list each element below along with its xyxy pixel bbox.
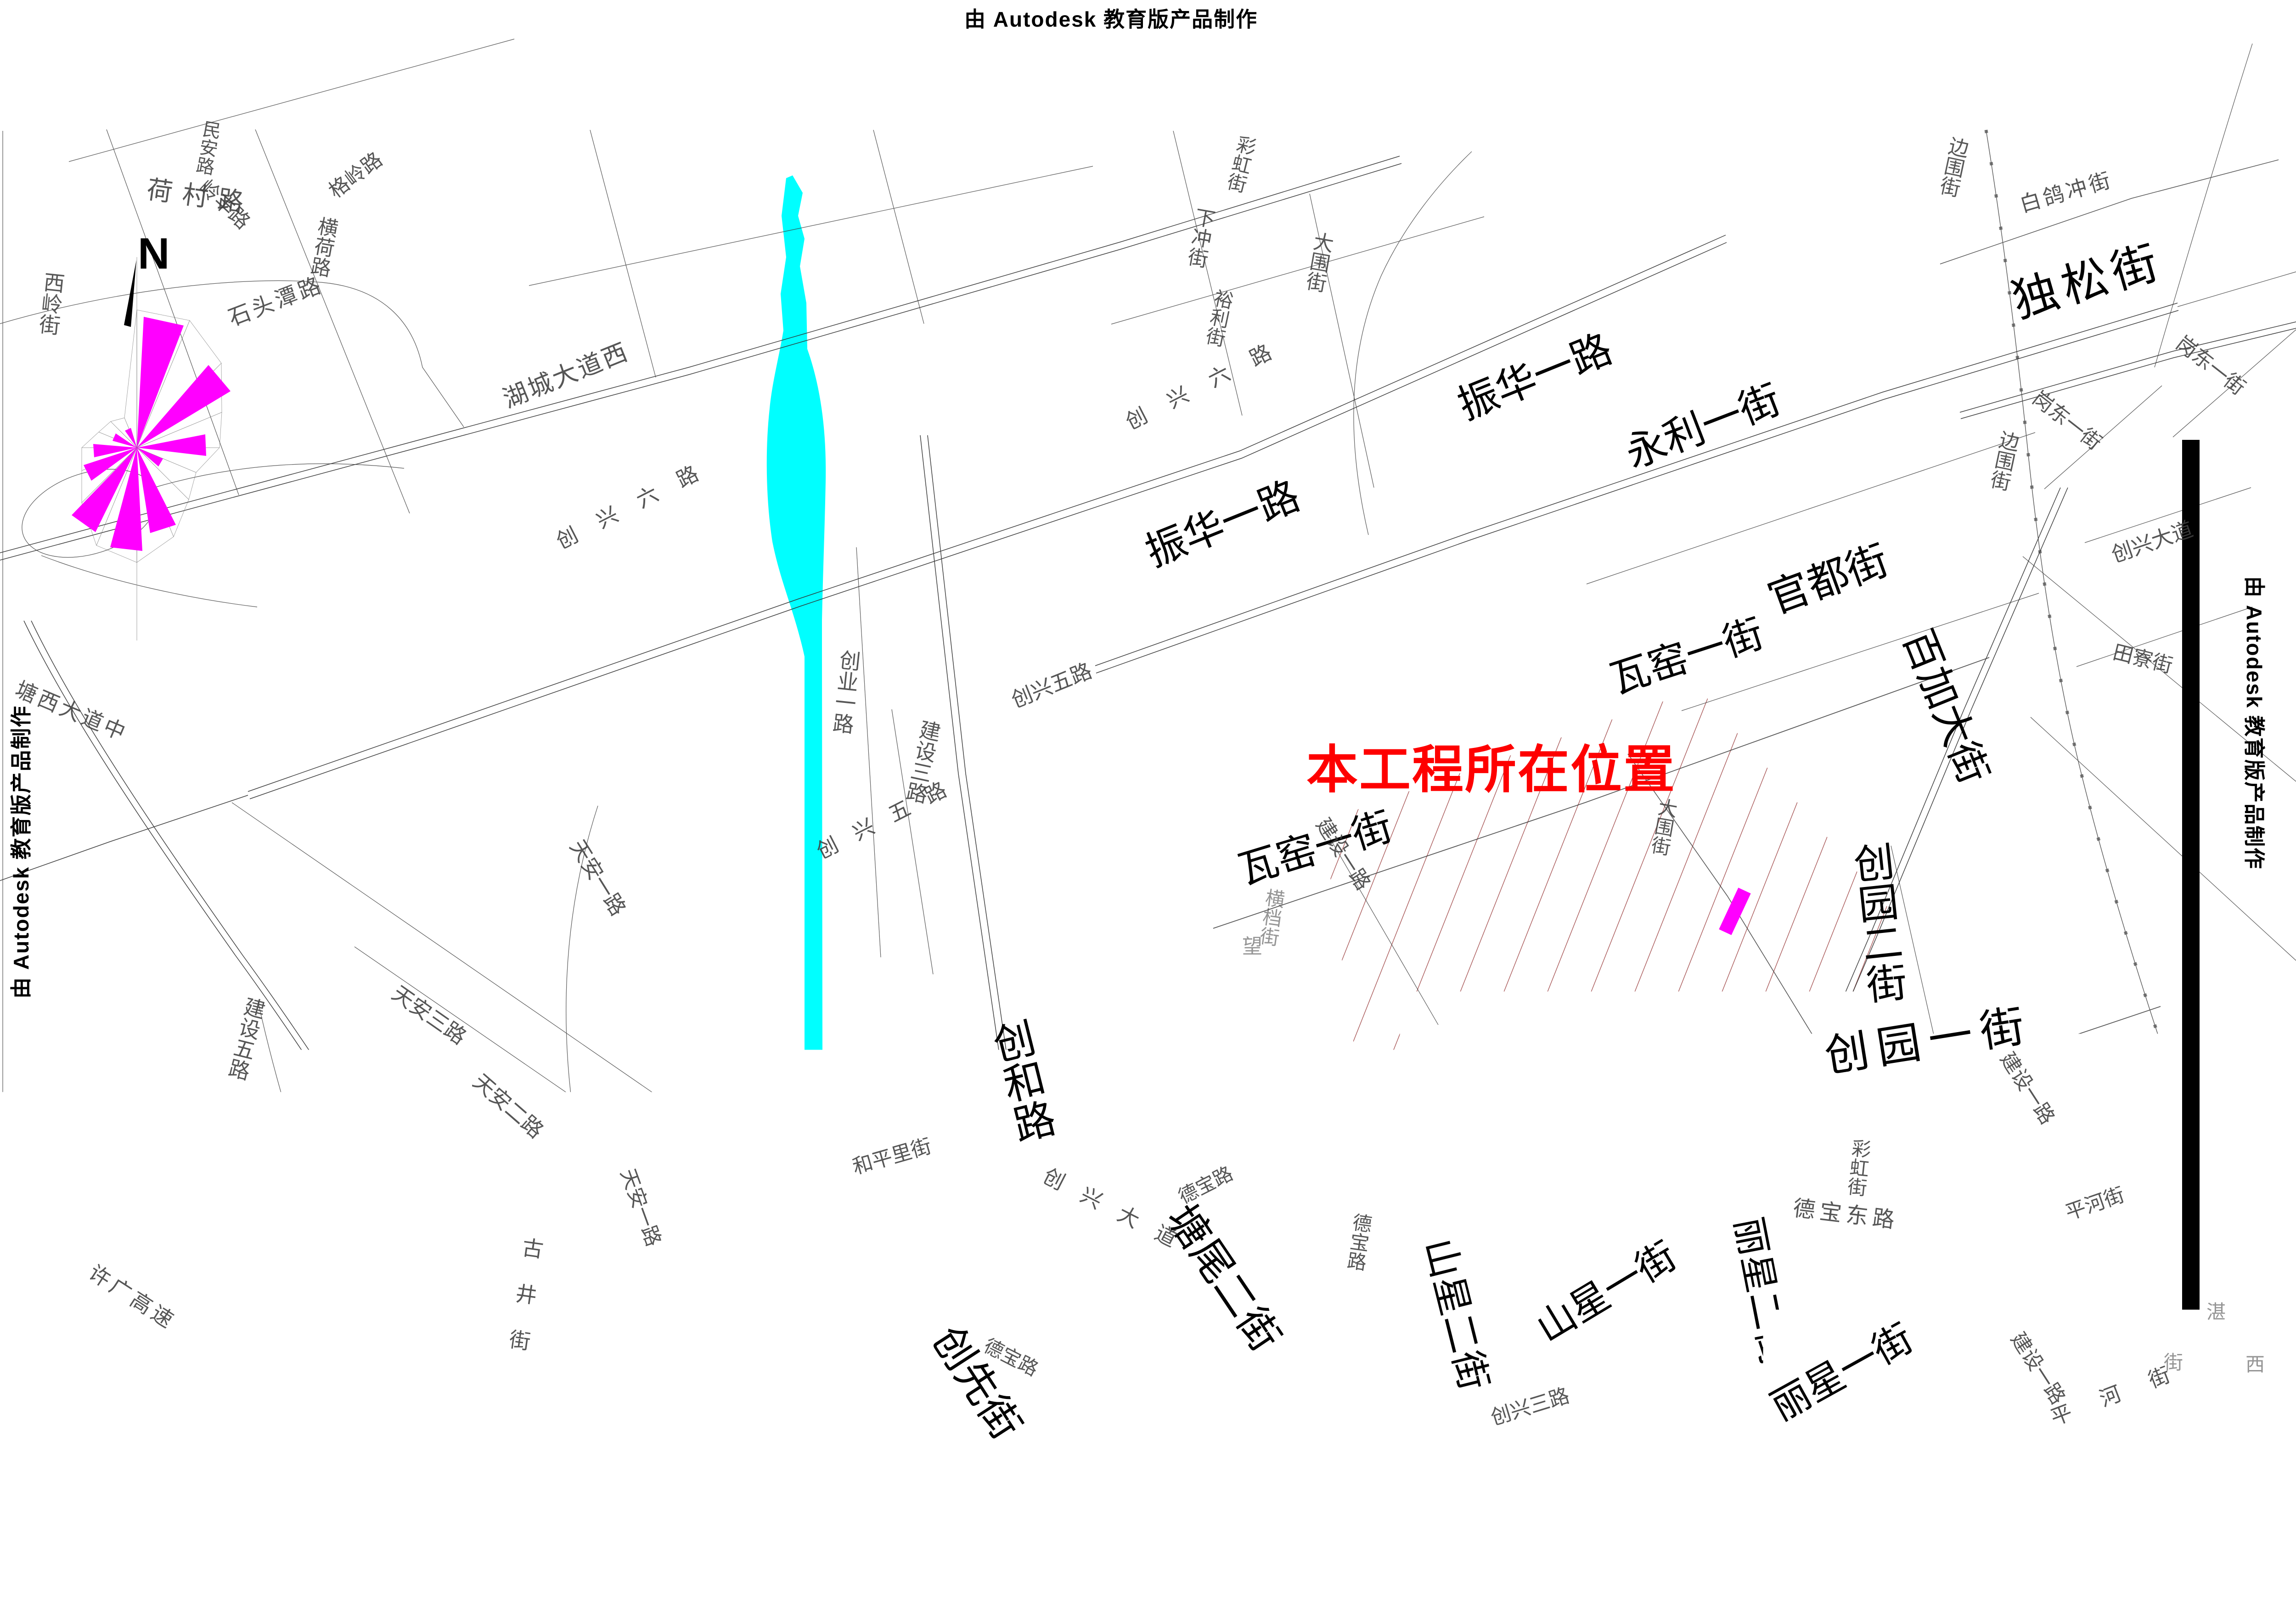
survey-extent-bar [2182, 440, 2200, 1371]
wind-rose [72, 260, 231, 562]
project-location-marker [1719, 887, 1750, 935]
scatter-char: 望 [1242, 937, 1262, 957]
north-label: N [138, 229, 169, 279]
autodesk-watermark-bottom: 由 Autodesk 教育版产品制作 [964, 1584, 1258, 1612]
river [767, 175, 826, 1432]
major-roads [0, 156, 2296, 1504]
map-drawing [0, 0, 2296, 1612]
site-location-map: 由 Autodesk 教育版产品制作 由 Autodesk 教育版产品制作 由 … [0, 0, 2296, 1612]
autodesk-watermark-top: 由 Autodesk 教育版产品制作 [964, 3, 1258, 33]
autodesk-watermark-left: 由 Autodesk 教育版产品制作 [5, 705, 35, 999]
project-location-annotation: 本工程所在位置 [1306, 745, 1676, 796]
scatter-char: 西 [2245, 1355, 2265, 1375]
scatter-char: 湛 [2206, 1303, 2226, 1322]
scatter-char: 街 [2164, 1354, 2183, 1373]
autodesk-watermark-right: 由 Autodesk 教育版产品制作 [2240, 576, 2271, 870]
